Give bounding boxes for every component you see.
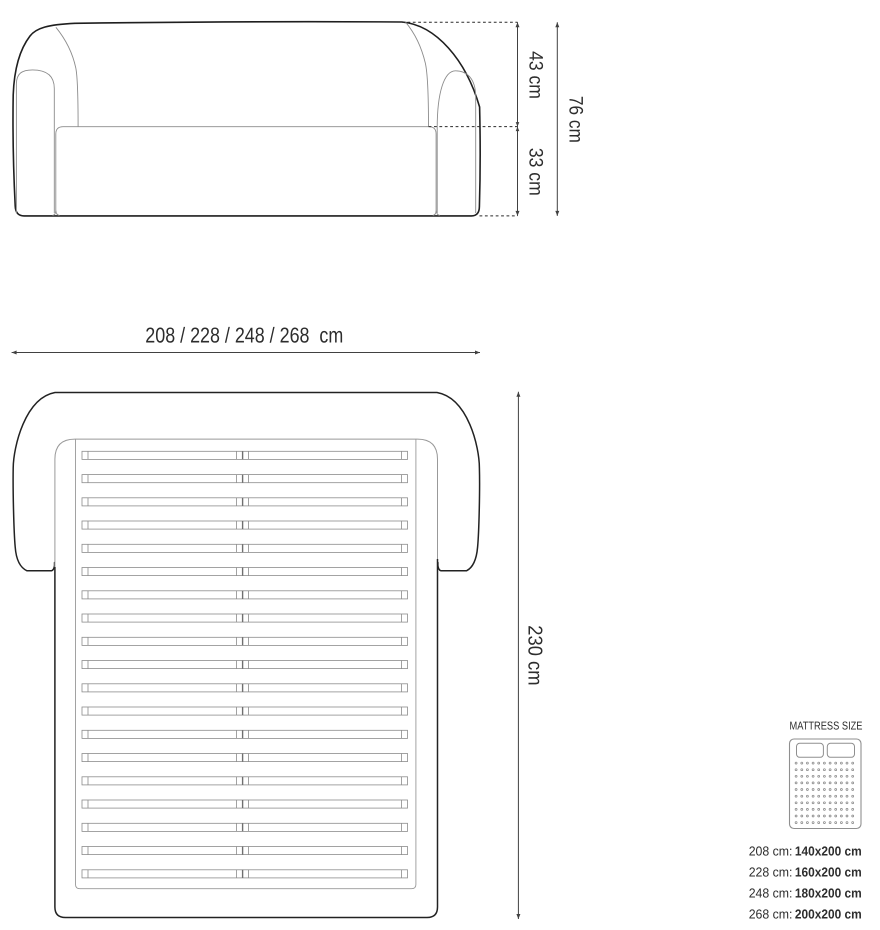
svg-text:43 cm: 43 cm: [524, 51, 546, 99]
svg-text:208 cm:: 208 cm:: [749, 843, 793, 858]
svg-text:200x200 cm: 200x200 cm: [795, 907, 862, 922]
svg-text:33 cm: 33 cm: [524, 148, 546, 196]
svg-text:248 cm:: 248 cm:: [749, 886, 793, 901]
svg-text:MATTRESS SIZE: MATTRESS SIZE: [790, 721, 863, 733]
svg-text:76 cm: 76 cm: [564, 96, 586, 143]
svg-text:208 / 228 / 248 / 268 cm: 208 / 228 / 248 / 268 cm: [145, 324, 343, 348]
svg-text:228 cm:: 228 cm:: [749, 865, 793, 880]
svg-text:268 cm:: 268 cm:: [749, 907, 793, 922]
svg-text:140x200 cm: 140x200 cm: [795, 843, 862, 858]
svg-text:160x200 cm: 160x200 cm: [795, 865, 862, 880]
svg-text:180x200 cm: 180x200 cm: [795, 886, 862, 901]
svg-text:230 cm: 230 cm: [523, 625, 545, 685]
